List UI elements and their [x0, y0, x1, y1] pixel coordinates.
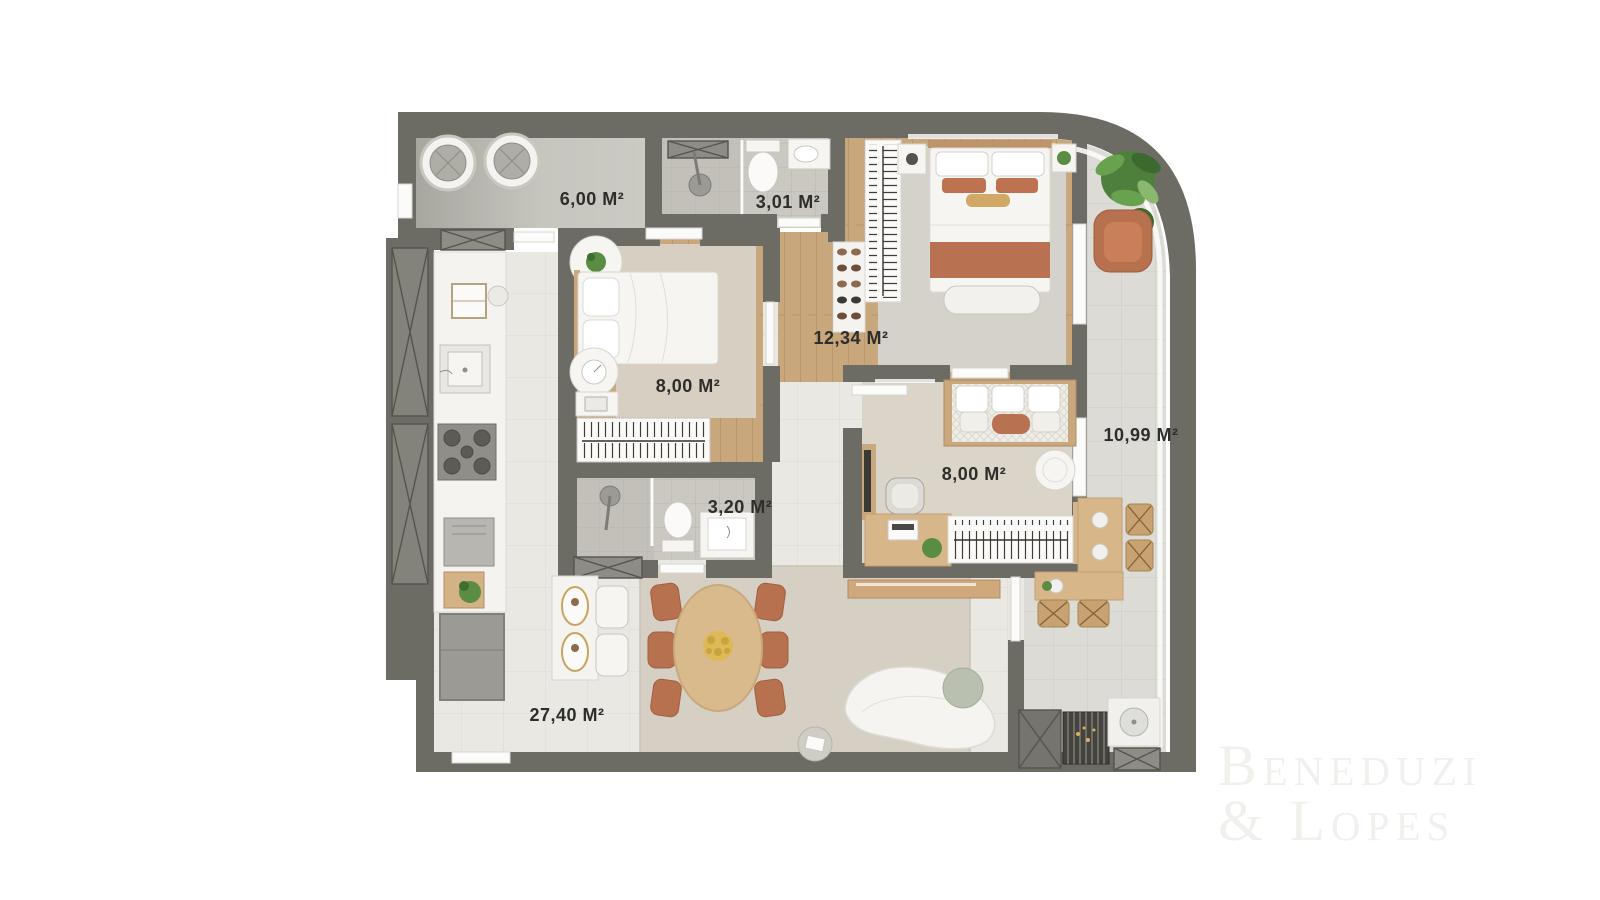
duct-x-icon: [668, 141, 728, 158]
wall-bedroom1-right-a: [763, 228, 780, 302]
console-highlight: [856, 583, 976, 586]
sink-drain: [1132, 720, 1137, 725]
duct-x-icon: [574, 557, 642, 578]
plant-leaf: [459, 581, 469, 591]
entry-door-leaf: [452, 752, 510, 763]
wall-left-upper: [398, 112, 416, 240]
master-suite: [833, 134, 1076, 332]
shaft-x-icon: [392, 248, 428, 416]
food: [571, 598, 579, 606]
plate: [1092, 512, 1108, 528]
laptop-screen: [892, 524, 914, 530]
bolster-pillow: [966, 194, 1010, 207]
dining-chair: [650, 678, 683, 718]
bedroom-1-top-window: [646, 228, 702, 239]
cushion: [956, 386, 988, 412]
bar-stool: [596, 634, 628, 676]
side-table-sage: [943, 668, 983, 708]
laundry-niche: [398, 184, 412, 218]
area-label-balcony: 10,99 M²: [1103, 425, 1178, 445]
kitchen-laundry-door: [514, 232, 554, 242]
flower-centerpiece-icon: [703, 631, 733, 661]
dining-set: [648, 582, 788, 718]
cushion: [960, 412, 988, 432]
area-label-bedroom2: 8,00 M²: [942, 464, 1007, 484]
wall-sill: [875, 379, 935, 383]
cushion: [1028, 386, 1060, 412]
book-icon: [585, 397, 607, 411]
bed-throw: [930, 242, 1050, 278]
bolster-pillow: [992, 414, 1030, 434]
tv-icon: [864, 450, 871, 512]
bed-bench: [944, 286, 1040, 314]
shaft-x-icon: [392, 424, 428, 584]
sink-bowl: [794, 146, 818, 162]
lamp-icon: [906, 153, 918, 165]
area-label-living: 27,40 M²: [529, 705, 604, 725]
table-plant: [1042, 581, 1052, 591]
area-label-bedroom1: 8,00 M²: [656, 376, 721, 396]
round-side-table: [1035, 450, 1075, 490]
area-label-bathroom2: 3,20 M²: [708, 497, 773, 517]
wall-laundry-bath-divider: [645, 138, 662, 230]
cushion: [992, 386, 1024, 412]
duct-x-icon: [441, 230, 505, 250]
wall-bedroom2-left: [843, 428, 862, 563]
area-label-laundry: 6,00 M²: [560, 189, 625, 209]
toilet-tank: [662, 540, 694, 552]
pillow: [992, 152, 1044, 176]
wall-bath2-top: [558, 462, 772, 478]
dining-chair: [754, 582, 787, 622]
bathroom-1-door: [778, 218, 820, 227]
master-window: [1073, 224, 1086, 324]
balcony-slider-door: [1011, 577, 1020, 641]
oven-icon: [444, 518, 494, 566]
accent-pillow: [996, 178, 1038, 193]
kitchen-island: [552, 576, 628, 680]
armchair-seat: [1104, 222, 1142, 262]
bed-headboard: [928, 140, 1052, 148]
watermark-line1: Beneduzi: [1218, 738, 1482, 793]
wall-bath1-right: [828, 138, 845, 242]
sink-drain: [463, 368, 468, 373]
cushion: [1032, 412, 1060, 432]
bar-stool: [596, 586, 628, 628]
dining-chair: [650, 582, 683, 622]
kitchen: [434, 252, 508, 700]
dining-chair: [754, 678, 787, 718]
pillow: [583, 278, 619, 316]
plant-icon: [1057, 151, 1071, 165]
area-label-master: 12,34 M²: [813, 328, 888, 348]
wall-sill: [908, 134, 1058, 139]
watermark-line2: & Lopes: [1218, 793, 1482, 848]
wall-bedroom1-right-b: [763, 366, 780, 462]
plant-leaf: [587, 253, 595, 261]
shoe-rack: [833, 242, 865, 332]
pillow: [936, 152, 988, 176]
bedroom-1-door-leaf: [766, 302, 774, 364]
chair-seat: [892, 484, 918, 508]
buffet-console: [848, 580, 1000, 598]
sink-basin: [708, 518, 746, 550]
toilet-icon: [664, 502, 692, 538]
area-label-bathroom1: 3,01 M²: [756, 192, 821, 212]
desk-plant-icon: [922, 538, 942, 558]
watermark-logo: Beneduzi & Lopes: [1218, 738, 1482, 848]
cabinet-x-icon: [1114, 748, 1160, 770]
floor-plan-page: 6,00 M² 3,01 M² 12,34 M² 8,00 M² 3,20 M²…: [0, 0, 1600, 900]
accent-pillow: [942, 178, 986, 193]
dining-chair: [760, 632, 788, 668]
dining-chair: [648, 632, 676, 668]
master-door: [952, 368, 1008, 378]
toilet-tank: [746, 140, 780, 152]
wall-bath2-right: [755, 462, 772, 578]
plate: [1092, 544, 1108, 560]
bathroom-2-door: [660, 564, 704, 573]
toilet-icon: [748, 152, 778, 192]
wall-left-lower: [416, 680, 434, 772]
fridge-icon: [440, 614, 504, 700]
bedroom-2-door: [852, 385, 907, 395]
wardrobe-hangers: [581, 422, 706, 458]
cabinet-x-icon: [1019, 710, 1061, 768]
food: [571, 644, 579, 652]
jar-icon: [488, 286, 508, 306]
